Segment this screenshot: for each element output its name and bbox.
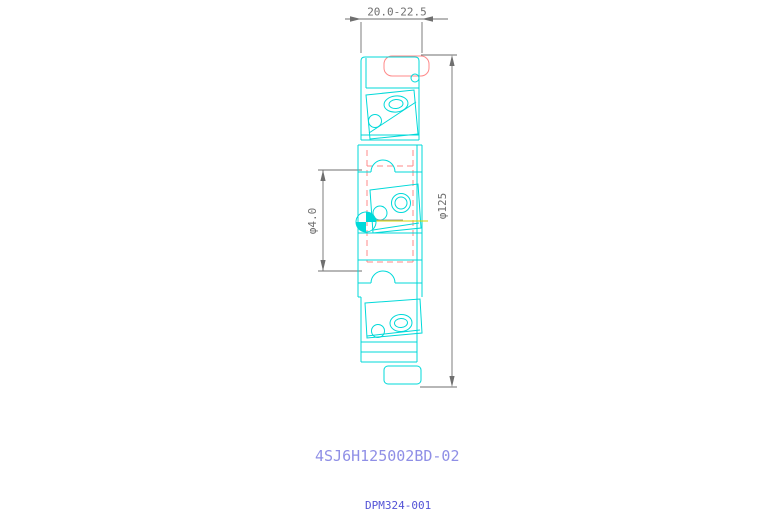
top-width-dimension: 20.0-22.5 <box>345 6 448 54</box>
bore-diameter-dimension: φ4.0 <box>306 170 362 271</box>
cad-drawing-canvas: 20.0-22.5 φ125 φ4.0 <box>0 0 767 523</box>
centroid-marker <box>356 212 376 232</box>
technical-drawing: 20.0-22.5 φ125 φ4.0 <box>0 0 767 523</box>
part-number-list: DPM324-001 DPM324-001-P DPM324-002 DPM32… <box>365 472 444 523</box>
outer-diameter-label: φ125 <box>436 193 449 220</box>
width-dimension-label: 20.0-22.5 <box>367 6 427 19</box>
bore-diameter-label: φ4.0 <box>306 208 319 235</box>
part-number-item: DPM324-001 <box>365 499 444 512</box>
clip-component-bottom <box>365 299 422 338</box>
clip-component-top <box>366 90 418 139</box>
highlight-region-top <box>384 56 429 76</box>
bottom-tab-outline <box>384 366 421 384</box>
drawing-title: 4SJ6H125002BD-02 <box>315 447 460 465</box>
top-right-detail <box>411 74 419 82</box>
